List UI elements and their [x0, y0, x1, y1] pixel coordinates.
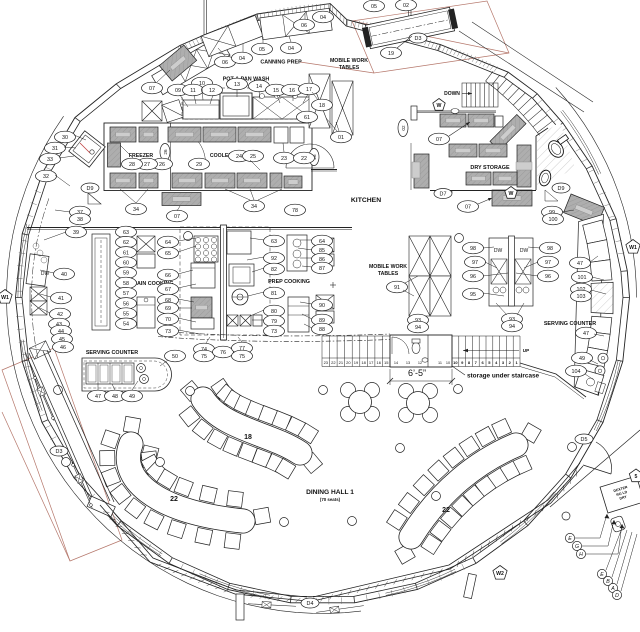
svg-text:16: 16: [376, 360, 381, 365]
svg-text:61: 61: [304, 115, 310, 121]
svg-text:39: 39: [73, 230, 79, 236]
svg-text:70: 70: [165, 317, 171, 323]
svg-text:47: 47: [577, 261, 583, 267]
svg-text:33: 33: [47, 157, 53, 163]
svg-text:80: 80: [271, 309, 277, 315]
svg-text:34: 34: [251, 204, 257, 210]
svg-text:75: 75: [239, 354, 245, 360]
svg-text:14: 14: [394, 361, 398, 365]
svg-text:18: 18: [244, 434, 252, 441]
svg-text:75: 75: [201, 354, 207, 360]
svg-text:W: W: [437, 103, 442, 109]
svg-text:96: 96: [470, 274, 476, 280]
svg-text:06: 06: [301, 23, 307, 29]
svg-text:29: 29: [196, 162, 202, 168]
svg-text:47: 47: [95, 394, 101, 400]
svg-text:73: 73: [165, 329, 171, 335]
svg-text:13: 13: [406, 361, 410, 365]
svg-text:6’-5”: 6’-5”: [408, 368, 426, 378]
svg-text:65: 65: [165, 251, 171, 257]
svg-text:24: 24: [236, 154, 242, 160]
svg-text:07: 07: [174, 214, 180, 220]
svg-text:10: 10: [453, 360, 458, 365]
svg-text:DW: DW: [520, 248, 529, 254]
svg-text:E: E: [600, 572, 604, 578]
svg-text:TABLES: TABLES: [378, 271, 399, 277]
svg-text:61: 61: [123, 250, 129, 256]
svg-text:07: 07: [149, 86, 155, 92]
svg-text:64: 64: [165, 240, 171, 246]
svg-text:07: 07: [465, 204, 471, 210]
svg-text:22: 22: [442, 507, 450, 514]
svg-text:25: 25: [250, 154, 256, 160]
svg-text:02: 02: [401, 125, 406, 131]
svg-text:14: 14: [256, 84, 262, 90]
svg-text:94: 94: [509, 324, 515, 330]
svg-text:50: 50: [172, 354, 178, 360]
svg-text:05: 05: [371, 4, 377, 10]
svg-text:D5: D5: [581, 437, 588, 443]
svg-text:17: 17: [369, 360, 374, 365]
svg-text:46: 46: [60, 345, 66, 351]
svg-text:D9: D9: [558, 186, 565, 192]
svg-text:90: 90: [319, 303, 325, 309]
svg-text:63: 63: [271, 239, 277, 245]
svg-text:DINING HALL 1: DINING HALL 1: [306, 489, 354, 496]
svg-text:UP: UP: [523, 348, 529, 353]
svg-text:13: 13: [234, 82, 240, 88]
svg-text:41: 41: [58, 296, 64, 302]
svg-text:TABLES: TABLES: [339, 65, 360, 71]
svg-text:59: 59: [123, 271, 129, 277]
svg-text:22: 22: [301, 156, 307, 162]
svg-text:22: 22: [331, 360, 336, 365]
svg-text:D: D: [615, 593, 619, 599]
svg-text:D4: D4: [307, 601, 314, 607]
svg-text:69: 69: [165, 306, 171, 312]
svg-text:01: 01: [338, 135, 344, 141]
svg-text:98: 98: [547, 246, 553, 252]
svg-text:11: 11: [438, 361, 442, 365]
svg-text:10: 10: [446, 361, 450, 365]
svg-text:55: 55: [123, 312, 129, 318]
svg-text:15: 15: [384, 360, 389, 365]
svg-text:28: 28: [129, 162, 135, 168]
svg-text:05: 05: [259, 47, 265, 53]
svg-text:48: 48: [112, 394, 118, 400]
svg-text:63: 63: [123, 230, 129, 236]
svg-text:94: 94: [415, 325, 421, 331]
svg-text:27: 27: [144, 162, 150, 168]
svg-text:73: 73: [271, 329, 277, 335]
svg-text:38: 38: [77, 217, 83, 223]
svg-text:09: 09: [175, 88, 181, 94]
svg-text:103: 103: [577, 294, 586, 300]
svg-text:11: 11: [190, 88, 196, 94]
svg-text:66: 66: [165, 273, 171, 279]
svg-text:W1: W1: [1, 295, 9, 301]
svg-text:18: 18: [361, 360, 366, 365]
svg-text:04: 04: [320, 15, 326, 21]
svg-text:G: G: [575, 544, 579, 550]
svg-text:W2: W2: [496, 571, 504, 577]
svg-text:31: 31: [52, 146, 58, 152]
svg-text:storage under staircase: storage under staircase: [467, 373, 540, 380]
svg-text:15: 15: [273, 88, 279, 94]
svg-text:32: 32: [43, 174, 49, 180]
svg-text:MOBILE WORK: MOBILE WORK: [369, 264, 407, 270]
svg-text:87: 87: [319, 266, 325, 272]
svg-text:26: 26: [163, 149, 168, 155]
svg-text:40: 40: [61, 272, 67, 278]
svg-text:21: 21: [339, 360, 344, 365]
svg-text:KITCHEN: KITCHEN: [351, 197, 381, 204]
svg-text:57: 57: [123, 291, 129, 297]
svg-text:W1: W1: [629, 245, 637, 251]
svg-text:DW: DW: [494, 248, 503, 254]
svg-text:(70 seats): (70 seats): [320, 497, 341, 502]
svg-text:58: 58: [123, 281, 129, 287]
svg-text:49: 49: [129, 394, 135, 400]
svg-text:MOBILE WORK: MOBILE WORK: [330, 58, 368, 64]
svg-text:18: 18: [319, 103, 325, 109]
svg-text:79: 79: [271, 319, 277, 325]
svg-text:22: 22: [170, 496, 178, 503]
svg-text:SERVING COUNTER: SERVING COUNTER: [86, 350, 138, 356]
svg-text:26: 26: [159, 162, 165, 168]
svg-text:H: H: [579, 552, 583, 558]
svg-text:19: 19: [388, 51, 394, 57]
svg-text:49: 49: [579, 356, 585, 362]
svg-text:67: 67: [165, 287, 171, 293]
svg-text:42: 42: [57, 312, 63, 318]
svg-text:04: 04: [239, 56, 245, 62]
svg-text:12: 12: [418, 361, 422, 365]
svg-text:78: 78: [292, 208, 298, 214]
svg-text:07: 07: [436, 137, 442, 143]
svg-text:97: 97: [545, 260, 551, 266]
svg-text:98: 98: [470, 246, 476, 252]
svg-text:88: 88: [319, 327, 325, 333]
svg-text:04: 04: [288, 46, 294, 52]
svg-text:E: E: [568, 536, 572, 542]
svg-text:CANNING PREP: CANNING PREP: [260, 60, 302, 66]
svg-text:76: 76: [220, 350, 226, 356]
svg-text:D3: D3: [415, 36, 422, 42]
svg-text:SERVING COUNTER: SERVING COUNTER: [544, 321, 596, 327]
svg-text:92: 92: [271, 256, 277, 262]
svg-text:D9: D9: [87, 186, 94, 192]
svg-text:91: 91: [394, 285, 400, 291]
svg-text:54: 54: [123, 322, 129, 328]
svg-text:12: 12: [209, 88, 215, 94]
svg-text:06: 06: [222, 60, 228, 66]
svg-text:47: 47: [583, 331, 589, 337]
svg-text:PREP COOKING: PREP COOKING: [268, 279, 310, 285]
svg-text:D7: D7: [440, 191, 447, 197]
svg-text:96: 96: [545, 274, 551, 280]
svg-text:23: 23: [324, 360, 329, 365]
svg-text:95: 95: [470, 292, 476, 298]
svg-text:B: B: [606, 579, 610, 585]
svg-text:81: 81: [271, 291, 277, 297]
svg-text:82: 82: [271, 267, 277, 273]
svg-text:97: 97: [472, 260, 478, 266]
svg-text:W: W: [509, 191, 514, 197]
svg-text:DOWN: DOWN: [444, 91, 460, 97]
svg-text:19: 19: [354, 360, 359, 365]
svg-text:30: 30: [62, 135, 68, 141]
svg-text:D3: D3: [56, 449, 63, 455]
svg-text:DRY STORAGE: DRY STORAGE: [470, 165, 510, 171]
svg-text:100: 100: [549, 217, 558, 223]
svg-text:34: 34: [133, 207, 139, 213]
svg-text:17: 17: [306, 87, 312, 93]
svg-text:62: 62: [123, 240, 129, 246]
svg-text:60: 60: [123, 261, 129, 267]
svg-text:20: 20: [346, 360, 351, 365]
svg-text:56: 56: [123, 301, 129, 307]
svg-text:16: 16: [289, 88, 295, 94]
svg-text:5: 5: [635, 474, 638, 480]
svg-text:02: 02: [403, 3, 409, 9]
svg-text:104: 104: [572, 369, 581, 375]
svg-text:23: 23: [281, 156, 287, 162]
svg-text:101: 101: [578, 275, 587, 281]
